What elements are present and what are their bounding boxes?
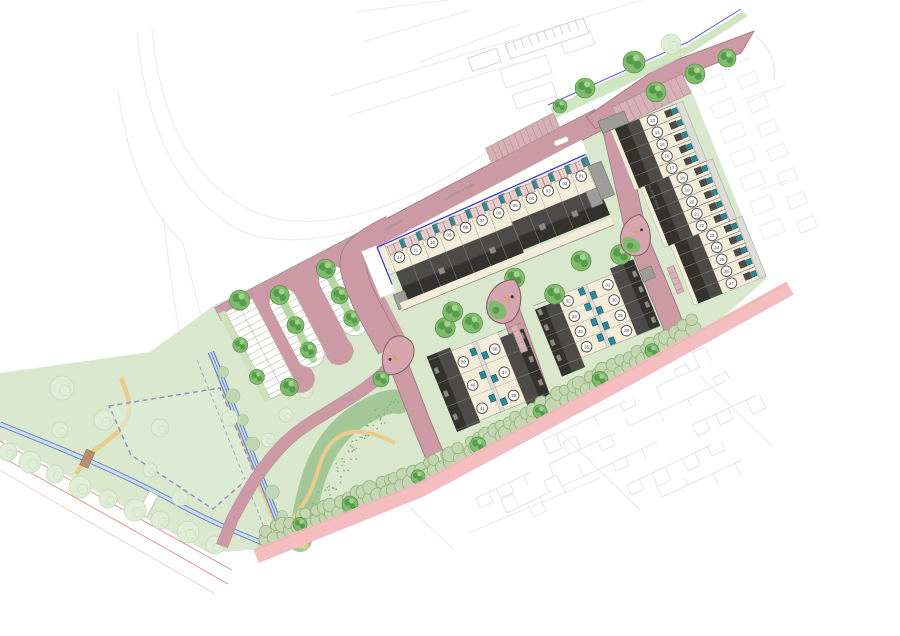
svg-text:10: 10 <box>430 240 436 245</box>
svg-text:14: 14 <box>655 130 661 135</box>
svg-text:32: 32 <box>566 299 572 304</box>
svg-text:35: 35 <box>584 344 590 349</box>
svg-text:39: 39 <box>461 360 467 365</box>
svg-text:36: 36 <box>511 393 517 398</box>
svg-text:22: 22 <box>699 223 705 228</box>
svg-text:15: 15 <box>660 142 666 147</box>
svg-text:24: 24 <box>714 245 720 250</box>
svg-text:06: 06 <box>496 211 502 216</box>
svg-text:26: 26 <box>724 269 730 274</box>
svg-text:17: 17 <box>669 166 675 171</box>
svg-text:04: 04 <box>529 196 535 201</box>
svg-text:13: 13 <box>650 118 656 123</box>
svg-text:33: 33 <box>572 314 578 319</box>
svg-text:34: 34 <box>578 329 584 334</box>
svg-text:05: 05 <box>513 203 519 208</box>
svg-text:16: 16 <box>664 154 670 159</box>
svg-text:29: 29 <box>618 313 624 318</box>
svg-text:12: 12 <box>397 255 403 260</box>
svg-text:28: 28 <box>624 328 630 333</box>
svg-text:37: 37 <box>502 370 508 375</box>
svg-text:23: 23 <box>709 233 715 238</box>
svg-text:03: 03 <box>546 188 552 193</box>
svg-text:30: 30 <box>612 298 618 303</box>
svg-text:25: 25 <box>719 257 725 262</box>
svg-text:21: 21 <box>694 211 700 216</box>
svg-text:08: 08 <box>463 225 469 230</box>
svg-text:40: 40 <box>470 383 476 388</box>
svg-text:07: 07 <box>479 218 485 223</box>
svg-text:02: 02 <box>562 181 568 186</box>
svg-text:20: 20 <box>689 199 695 204</box>
svg-text:01: 01 <box>579 174 585 179</box>
svg-text:38: 38 <box>492 347 498 352</box>
svg-text:31: 31 <box>605 282 611 287</box>
svg-text:19: 19 <box>685 187 691 192</box>
svg-text:11: 11 <box>414 247 419 252</box>
svg-text:27: 27 <box>729 281 735 286</box>
svg-text:09: 09 <box>446 233 452 238</box>
svg-text:18: 18 <box>680 175 686 180</box>
svg-text:41: 41 <box>480 406 486 411</box>
